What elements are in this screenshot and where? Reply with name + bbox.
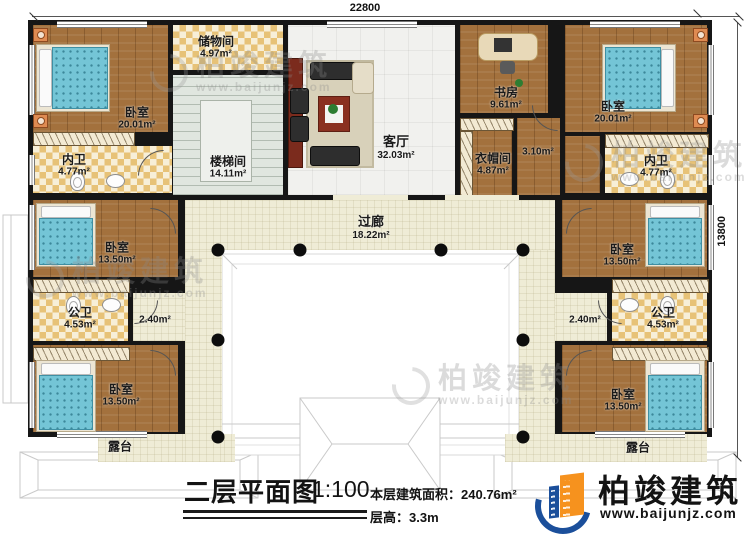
company-logo-icon bbox=[533, 468, 593, 528]
room-label-hall-240-right: 2.40m² bbox=[569, 314, 601, 326]
column bbox=[517, 431, 530, 444]
room-label-storage: 储物间4.97m² bbox=[198, 36, 234, 61]
room-label-living: 客厅32.03m² bbox=[377, 135, 414, 161]
plant bbox=[328, 104, 338, 114]
window bbox=[708, 45, 714, 115]
armchair bbox=[290, 116, 309, 142]
dimension-right-line bbox=[737, 22, 738, 458]
bed bbox=[645, 360, 705, 432]
room-label-hall-310: 3.10m² bbox=[522, 146, 554, 158]
sink bbox=[620, 298, 639, 312]
room-label-study: 书房9.61m² bbox=[490, 87, 522, 112]
room-label-bedroom-mid-right: 卧室13.50m² bbox=[603, 244, 640, 269]
dimension-top-line bbox=[32, 16, 740, 17]
sink bbox=[102, 298, 121, 312]
nightstand bbox=[693, 114, 708, 128]
room-label-terrace-left: 露台 bbox=[108, 440, 132, 453]
column bbox=[517, 244, 530, 257]
room-label-bedroom-mid-left: 卧室13.50m² bbox=[98, 242, 135, 267]
dimension-right: 13800 bbox=[716, 216, 728, 247]
window bbox=[57, 21, 147, 28]
title-underline-2 bbox=[183, 517, 367, 519]
cloakroom-hatch-top bbox=[460, 118, 514, 131]
company-logo-website: www.baijunjz.com bbox=[600, 505, 737, 521]
room-label-bath-public-right: 公卫4.53m² bbox=[647, 307, 679, 332]
coffee-table bbox=[318, 96, 350, 132]
window bbox=[708, 362, 714, 428]
wardrobe-hatch bbox=[33, 132, 135, 146]
window bbox=[29, 362, 35, 428]
room-label-bath-inner-right: 内卫4.77m² bbox=[640, 155, 672, 180]
plan-title: 二层平面图 bbox=[184, 472, 319, 509]
room-label-bedroom-bottom-right: 卧室13.50m² bbox=[604, 389, 641, 414]
room-label-terrace-right: 露台 bbox=[626, 441, 650, 454]
room-label-bedroom-bottom-left: 卧室13.50m² bbox=[102, 384, 139, 409]
column bbox=[212, 431, 225, 444]
window bbox=[595, 431, 685, 438]
watermark: 柏竣建筑www.baijunjz.com bbox=[392, 365, 574, 406]
room-label-bath-public-left: 公卫4.53m² bbox=[64, 307, 96, 332]
wardrobe-hatch bbox=[33, 347, 130, 361]
door-opening bbox=[445, 195, 519, 200]
wardrobe-hatch bbox=[612, 347, 709, 361]
plan-scale: 1:100 bbox=[312, 476, 370, 503]
watermark-logo-icon bbox=[384, 359, 438, 413]
bed bbox=[645, 203, 705, 267]
window bbox=[29, 45, 35, 115]
column bbox=[435, 244, 448, 257]
dimension-top: 22800 bbox=[340, 2, 390, 14]
floor-plan: 柏竣建筑www.baijunjz.com 柏竣建筑www.baijunjz.co… bbox=[0, 0, 750, 535]
door-opening bbox=[333, 195, 408, 200]
room-label-hall-240-left: 2.40m² bbox=[139, 314, 171, 326]
room-label-bedroom-top-right: 卧室20.01m² bbox=[594, 101, 631, 126]
room-label-cloakroom: 衣帽间4.87m² bbox=[475, 153, 511, 178]
window bbox=[708, 205, 714, 270]
desk-chair bbox=[500, 61, 515, 74]
chaise bbox=[352, 62, 374, 94]
room-label-stairwell: 楼梯间14.11m² bbox=[210, 156, 247, 181]
room-label-bath-inner-left: 内卫4.77m² bbox=[58, 154, 90, 179]
window bbox=[327, 21, 417, 28]
monitor bbox=[494, 38, 512, 52]
wardrobe-hatch bbox=[612, 279, 709, 293]
room-label-corridor: 过廊18.22m² bbox=[352, 215, 389, 241]
nightstand bbox=[693, 28, 708, 42]
column bbox=[517, 334, 530, 347]
window bbox=[29, 155, 35, 185]
watermark: 柏竣建筑www.baijunjz.com bbox=[150, 52, 332, 93]
watermark-logo-icon bbox=[142, 46, 196, 100]
floor-height-text: 层高：3.3m bbox=[370, 507, 439, 526]
sink bbox=[106, 174, 125, 188]
column bbox=[212, 244, 225, 257]
watermark-logo-icon bbox=[18, 252, 72, 306]
window bbox=[57, 431, 147, 438]
nightstand bbox=[33, 114, 48, 128]
bed bbox=[36, 360, 96, 432]
title-underline bbox=[183, 510, 367, 513]
watermark-logo-icon bbox=[557, 136, 611, 190]
bed bbox=[36, 44, 110, 112]
floor-area-text: 本层建筑面积：240.76m² bbox=[370, 484, 517, 503]
room-label-bedroom-top-left: 卧室20.01m² bbox=[118, 107, 155, 132]
window bbox=[590, 21, 680, 28]
cloakroom-hatch-side bbox=[460, 131, 473, 197]
column bbox=[294, 244, 307, 257]
column bbox=[212, 334, 225, 347]
nightstand bbox=[33, 28, 48, 42]
sofa bbox=[310, 146, 360, 166]
